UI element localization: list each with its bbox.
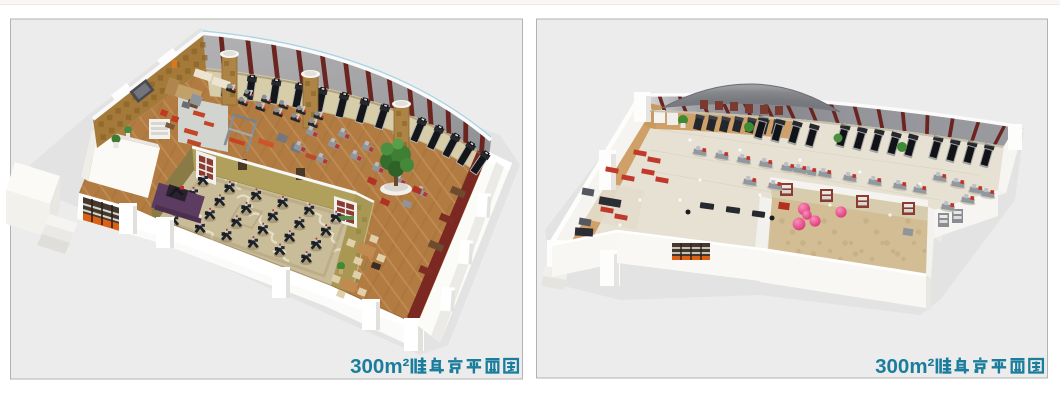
svg-text:300m²: 300m² [875, 355, 934, 378]
svg-text:300m²: 300m² [350, 355, 409, 378]
